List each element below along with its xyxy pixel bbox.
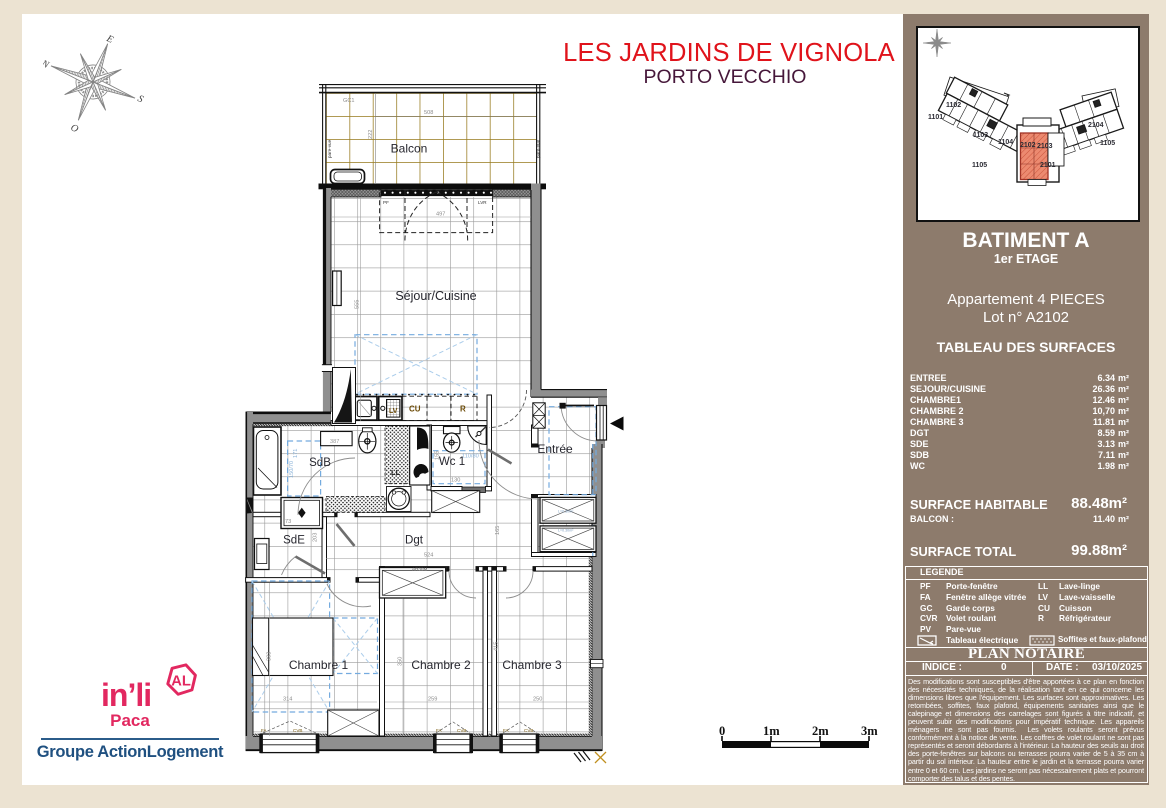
svg-text:FA: FA (436, 728, 443, 733)
svg-text:497: 497 (436, 212, 445, 218)
svg-text:CVB: CVB (293, 728, 302, 733)
svg-text:1102: 1102 (946, 102, 961, 109)
svg-text:CVB: CVB (524, 728, 533, 733)
svg-text:L=0.30m²: L=0.30m² (558, 510, 574, 514)
svg-text:Chambre 3: Chambre 3 (502, 658, 562, 672)
svg-text:3m: 3m (861, 724, 878, 738)
svg-text:PF: PF (383, 200, 389, 205)
svg-text:2101: 2101 (1040, 162, 1056, 169)
svg-text:LV: LV (389, 408, 398, 415)
svg-text:171: 171 (293, 449, 299, 458)
svg-text:555: 555 (355, 300, 361, 309)
svg-text:Balcon: Balcon (391, 142, 428, 156)
svg-text:508: 508 (424, 110, 433, 116)
svg-text:2102: 2102 (1020, 142, 1036, 149)
svg-text:S: S (136, 93, 145, 105)
svg-text:350: 350 (398, 657, 404, 666)
svg-text:415: 415 (494, 642, 500, 651)
svg-text:150/70: 150/70 (289, 461, 295, 478)
svg-text:1101: 1101 (928, 114, 943, 121)
svg-text:CU: CU (409, 405, 421, 414)
svg-text:CVB: CVB (457, 728, 466, 733)
svg-text:L=0.30m²: L=0.30m² (558, 529, 574, 533)
svg-text:Chambre 2: Chambre 2 (411, 658, 471, 672)
svg-text:203: 203 (313, 533, 319, 542)
svg-text:383: 383 (267, 652, 273, 661)
svg-text:250: 250 (533, 697, 542, 703)
svg-text:2m: 2m (812, 724, 829, 738)
svg-text:1m: 1m (763, 724, 780, 738)
svg-text:Entrée: Entrée (537, 442, 573, 456)
svg-text:FA: FA (503, 728, 510, 733)
svg-text:R: R (460, 405, 466, 414)
svg-text:524: 524 (424, 553, 433, 559)
svg-text:E: E (104, 33, 115, 46)
svg-text:314: 314 (283, 697, 292, 703)
svg-text:FA: FA (261, 728, 268, 733)
svg-text:0: 0 (719, 724, 725, 738)
svg-text:Chambre 1: Chambre 1 (289, 658, 349, 672)
svg-text:1104: 1104 (998, 139, 1013, 146)
svg-text:1103: 1103 (973, 132, 988, 139)
svg-text:O: O (69, 122, 80, 135)
svg-text:Wc 1: Wc 1 (439, 456, 465, 468)
svg-text:N: N (43, 58, 52, 72)
svg-text:2104: 2104 (1088, 122, 1104, 129)
svg-text:pare-vue: pare-vue (535, 139, 540, 158)
svg-text:pare-vue: pare-vue (327, 139, 332, 158)
svg-text:259: 259 (428, 697, 437, 703)
svg-text:Séjour/Cuisine: Séjour/Cuisine (395, 289, 476, 303)
svg-text:LL: LL (391, 468, 401, 477)
svg-text:AR30M: AR30M (412, 567, 427, 572)
svg-text:130: 130 (451, 478, 460, 484)
svg-text:SdE: SdE (283, 535, 305, 547)
svg-text:1105: 1105 (1100, 140, 1115, 147)
svg-text:2103: 2103 (1037, 143, 1053, 150)
svg-text:Dgt: Dgt (405, 535, 424, 547)
svg-text:LVR: LVR (478, 200, 487, 205)
svg-text:387: 387 (330, 439, 339, 445)
svg-text:165: 165 (495, 526, 501, 535)
svg-text:GC1: GC1 (343, 98, 355, 104)
svg-text:1105: 1105 (972, 162, 987, 169)
svg-text:SdB: SdB (309, 457, 331, 469)
svg-text:73: 73 (285, 519, 291, 525)
svg-text:222: 222 (368, 130, 374, 139)
